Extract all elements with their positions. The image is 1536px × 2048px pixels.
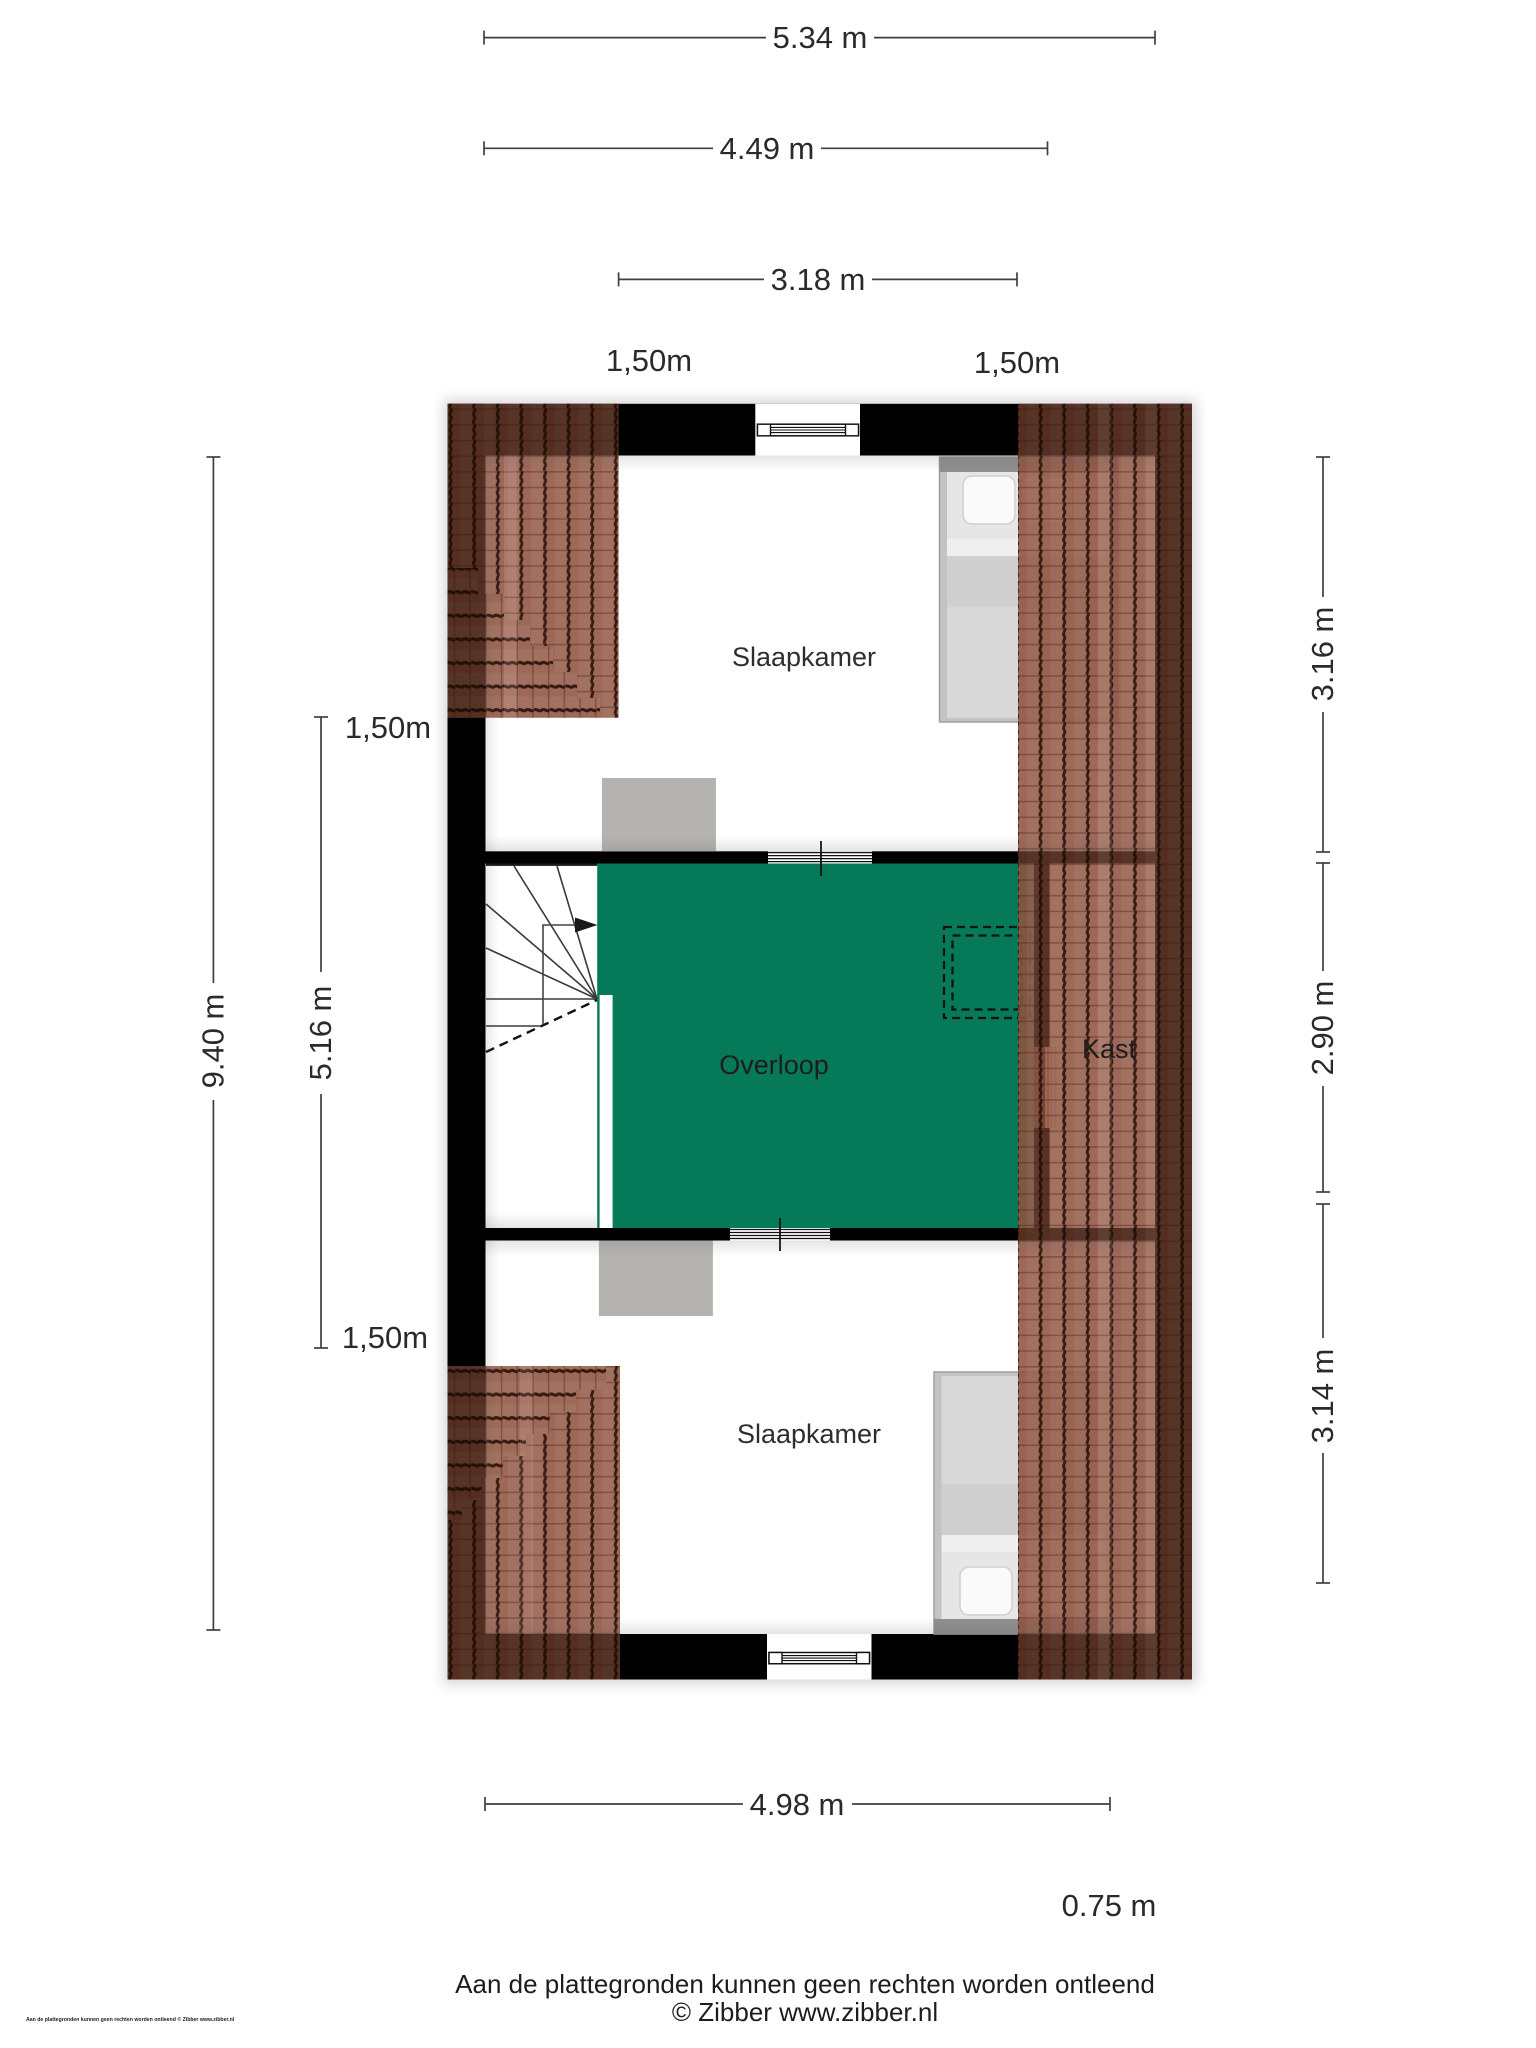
svg-text:Overloop: Overloop — [719, 1050, 829, 1080]
svg-text:0.75 m: 0.75 m — [1062, 1888, 1157, 1923]
svg-text:1,50m: 1,50m — [342, 1320, 428, 1355]
svg-text:4.98 m: 4.98 m — [750, 1787, 845, 1822]
svg-text:Slaapkamer: Slaapkamer — [737, 1419, 881, 1449]
svg-text:1,50m: 1,50m — [974, 345, 1060, 380]
svg-text:© Zibber www.zibber.nl: © Zibber www.zibber.nl — [672, 1997, 938, 2027]
svg-text:5.34 m: 5.34 m — [773, 20, 868, 55]
svg-text:9.40 m: 9.40 m — [195, 994, 230, 1089]
svg-text:3.18 m: 3.18 m — [771, 262, 866, 297]
svg-text:3.14 m: 3.14 m — [1305, 1349, 1340, 1444]
svg-text:1,50m: 1,50m — [606, 343, 692, 378]
svg-text:1,50m: 1,50m — [345, 710, 431, 745]
svg-text:Aan de plattegronden kunnen ge: Aan de plattegronden kunnen geen rechten… — [26, 2016, 235, 2023]
svg-text:5.16 m: 5.16 m — [303, 986, 338, 1081]
svg-text:3.16 m: 3.16 m — [1305, 607, 1340, 702]
svg-text:Aan de plattegronden kunnen ge: Aan de plattegronden kunnen geen rechten… — [455, 1969, 1155, 1999]
svg-text:4.49 m: 4.49 m — [720, 131, 815, 166]
svg-text:Kast: Kast — [1082, 1034, 1137, 1064]
svg-text:2.90 m: 2.90 m — [1305, 981, 1340, 1076]
svg-text:Slaapkamer: Slaapkamer — [732, 642, 876, 672]
